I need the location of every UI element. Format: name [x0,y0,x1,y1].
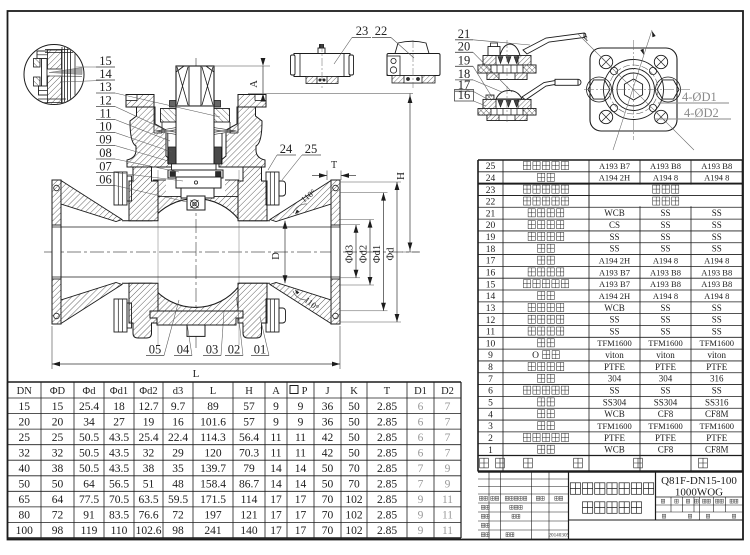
svg-text:9: 9 [488,351,493,361]
svg-text:A193 B8: A193 B8 [701,267,732,277]
svg-text:16: 16 [172,416,184,428]
svg-text:6: 6 [418,416,424,428]
svg-text:83.5: 83.5 [109,510,129,522]
svg-text:64: 64 [52,494,64,506]
svg-text:08: 08 [99,146,112,160]
svg-text:H: H [395,172,407,180]
svg-text:32: 32 [52,447,64,459]
svg-text:38: 38 [52,463,64,475]
svg-text:PTFE: PTFE [604,362,626,372]
svg-text:TFM1600: TFM1600 [597,421,631,431]
svg-text:P: P [302,386,308,397]
svg-text:CF8M: CF8M [705,445,729,455]
svg-text:SS: SS [609,385,619,395]
svg-text:2.85: 2.85 [377,525,397,537]
svg-text:6: 6 [418,401,424,413]
svg-text:25: 25 [19,432,31,444]
svg-text:13: 13 [486,304,496,314]
svg-text:A194 8: A194 8 [704,255,729,265]
svg-text:15: 15 [486,280,496,290]
svg-text:12: 12 [99,94,112,108]
svg-text:TFM1600: TFM1600 [648,338,682,348]
svg-text:SS: SS [609,232,619,242]
svg-text:WCB: WCB [604,409,625,419]
svg-text:65: 65 [19,494,31,506]
svg-text:11: 11 [295,432,306,444]
svg-text:19: 19 [486,233,496,243]
svg-text:10: 10 [486,339,496,349]
svg-text:40: 40 [19,463,31,475]
svg-text:76.6: 76.6 [138,510,158,522]
svg-text:Φd: Φd [83,386,97,397]
svg-text:50: 50 [348,416,360,428]
svg-text:11: 11 [442,510,453,522]
svg-text:2.85: 2.85 [377,447,397,459]
svg-text:17: 17 [270,494,282,506]
svg-text:H: H [245,386,253,397]
svg-text:9: 9 [298,401,304,413]
svg-text:20: 20 [19,416,31,428]
svg-text:50: 50 [348,432,360,444]
svg-text:57: 57 [243,416,255,428]
svg-text:9: 9 [273,416,279,428]
svg-text:43.5: 43.5 [109,447,129,459]
svg-text:A194 8: A194 8 [704,173,729,183]
svg-text:91: 91 [83,510,95,522]
svg-text:CS: CS [609,220,620,230]
svg-text:304: 304 [608,374,622,384]
svg-text:12: 12 [486,316,496,326]
svg-text:22: 22 [375,24,388,38]
svg-text:158.4: 158.4 [200,479,226,491]
svg-text:50.5: 50.5 [79,463,99,475]
svg-text:PTFE: PTFE [655,362,677,372]
svg-text:14: 14 [99,67,112,81]
svg-text:17: 17 [295,494,307,506]
svg-text:d3: d3 [173,386,184,397]
svg-text:T: T [331,160,337,171]
svg-text:14: 14 [270,463,282,475]
svg-text:PTFE: PTFE [604,433,626,443]
svg-text:2.85: 2.85 [377,463,397,475]
svg-text:7: 7 [418,479,424,491]
svg-text:17: 17 [295,510,307,522]
svg-text:05: 05 [149,343,162,357]
svg-text:2.85: 2.85 [377,494,397,506]
svg-text:TFM1600: TFM1600 [700,338,734,348]
svg-text:101.6: 101.6 [200,416,226,428]
svg-text:K: K [350,386,358,397]
svg-text:56.4: 56.4 [239,432,259,444]
svg-text:2: 2 [488,434,493,444]
svg-text:102: 102 [345,510,363,522]
svg-text:4: 4 [488,410,493,420]
svg-text:viton: viton [707,350,726,360]
svg-text:A: A [272,386,280,397]
svg-text:119: 119 [81,525,98,537]
svg-text:29: 29 [172,447,184,459]
svg-text:A194 8: A194 8 [653,173,678,183]
svg-text:Φd: Φd [386,247,397,261]
svg-text:25: 25 [52,432,64,444]
svg-text:SS: SS [609,244,619,254]
svg-text:77.5: 77.5 [79,494,99,506]
svg-text:42: 42 [322,432,334,444]
svg-text:6: 6 [488,387,493,397]
svg-text:A: A [249,80,260,88]
svg-text:50: 50 [19,479,31,491]
svg-text:SS: SS [712,220,722,230]
svg-text:7: 7 [445,416,451,428]
svg-text:4-ØD2: 4-ØD2 [684,106,719,120]
svg-text:64: 64 [83,479,95,491]
svg-text:197: 197 [204,510,222,522]
svg-text:6: 6 [418,447,424,459]
svg-text:SS: SS [609,326,619,336]
svg-text:14: 14 [295,479,307,491]
svg-text:A193 B8: A193 B8 [650,267,681,277]
svg-text:DN: DN [17,386,33,397]
svg-text:D1: D1 [414,386,427,397]
svg-text:A194 2H: A194 2H [599,173,630,183]
svg-text:SS: SS [712,326,722,336]
svg-text:SS304: SS304 [603,397,627,407]
svg-text:PTFE: PTFE [655,433,677,443]
svg-text:72: 72 [172,510,184,522]
svg-text:18: 18 [486,245,496,255]
svg-text:48: 48 [172,479,184,491]
svg-text:20: 20 [52,416,64,428]
svg-text:17: 17 [295,525,307,537]
svg-text:140: 140 [240,525,258,537]
svg-text:CF8: CF8 [658,445,674,455]
svg-text:9: 9 [418,525,424,537]
svg-text:16: 16 [458,88,471,102]
svg-text:102: 102 [345,525,363,537]
svg-text:SS: SS [660,315,670,325]
svg-text:70.5: 70.5 [109,494,129,506]
svg-text:9: 9 [418,510,424,522]
svg-text:9: 9 [445,463,451,475]
svg-text:139.7: 139.7 [200,463,226,475]
svg-text:32: 32 [143,447,155,459]
svg-text:L: L [210,386,216,397]
svg-text:T: T [384,386,391,397]
svg-text:7: 7 [445,447,451,459]
svg-text:07: 07 [99,160,112,174]
svg-text:241: 241 [204,525,222,537]
svg-text:PTFE: PTFE [706,433,728,443]
svg-text:50: 50 [348,447,360,459]
svg-text:SS: SS [609,315,619,325]
svg-text:89: 89 [207,401,219,413]
svg-text:2.85: 2.85 [377,432,397,444]
svg-text:17: 17 [486,257,496,267]
svg-text:ΦD: ΦD [50,386,66,397]
svg-text:viton: viton [605,350,624,360]
svg-text:Φd2: Φd2 [359,245,370,263]
svg-text:50.5: 50.5 [79,447,99,459]
svg-text:70: 70 [322,525,334,537]
svg-text:06: 06 [99,173,112,187]
svg-text:11: 11 [295,447,306,459]
svg-text:SS: SS [712,244,722,254]
svg-text:7: 7 [445,401,451,413]
svg-text:SS304: SS304 [654,397,678,407]
svg-text:9.7: 9.7 [171,401,186,413]
svg-text:80: 80 [19,510,31,522]
svg-text:14: 14 [295,463,307,475]
svg-text:D: D [271,252,282,260]
svg-text:102.6: 102.6 [136,525,162,537]
svg-text:35: 35 [172,463,184,475]
svg-text:A194 8: A194 8 [653,255,678,265]
svg-text:SS316: SS316 [705,397,729,407]
svg-text:7: 7 [418,463,424,475]
svg-text:42: 42 [322,447,334,459]
svg-text:24: 24 [280,142,293,156]
svg-text:PTFE: PTFE [706,362,728,372]
svg-text:70: 70 [322,510,334,522]
svg-text:114.3: 114.3 [200,432,226,444]
svg-text:316: 316 [710,374,724,384]
svg-text:32: 32 [19,447,31,459]
svg-text:03: 03 [206,343,219,357]
svg-text:A193 B8: A193 B8 [650,279,681,289]
svg-text:7: 7 [488,375,493,385]
svg-text:Φd3: Φd3 [345,245,356,263]
svg-text:14: 14 [486,292,496,302]
svg-text:TFM1600: TFM1600 [648,421,682,431]
svg-text:02: 02 [228,343,241,357]
svg-text:25.4: 25.4 [138,432,158,444]
svg-text:7: 7 [445,432,451,444]
svg-text:70: 70 [348,479,360,491]
svg-text:A193 B8: A193 B8 [650,161,681,171]
svg-text:Φd1: Φd1 [372,245,383,263]
svg-text:SS: SS [712,315,722,325]
svg-text:50.5: 50.5 [79,432,99,444]
svg-text:15: 15 [99,54,112,68]
svg-text:SS: SS [712,385,722,395]
svg-text:SS: SS [660,303,670,313]
svg-text:O: O [532,351,539,361]
svg-text:15: 15 [19,401,31,413]
svg-text:SS: SS [712,208,722,218]
svg-text:11: 11 [99,107,111,121]
svg-text:viton: viton [656,350,675,360]
svg-text:36: 36 [322,416,334,428]
svg-text:11: 11 [270,432,281,444]
svg-text:50: 50 [322,479,334,491]
svg-text:09: 09 [99,133,112,147]
svg-text:A193 B8: A193 B8 [701,161,732,171]
svg-text:121: 121 [240,510,258,522]
svg-text:WCB: WCB [604,445,625,455]
svg-text:A193 B7: A193 B7 [599,161,630,171]
svg-text:L: L [193,368,200,380]
svg-text:12.7: 12.7 [138,401,158,413]
svg-text:9: 9 [418,494,424,506]
svg-text:A193 B8: A193 B8 [701,279,732,289]
svg-text:5: 5 [488,399,493,409]
svg-text:11: 11 [442,525,453,537]
svg-text:51: 51 [143,479,155,491]
svg-text:17: 17 [270,510,282,522]
svg-text:13: 13 [99,80,112,94]
svg-text:100: 100 [16,525,34,537]
svg-text:72: 72 [52,510,64,522]
svg-text:70: 70 [322,494,334,506]
svg-text:25.4: 25.4 [79,401,99,413]
svg-text:16: 16 [486,268,496,278]
svg-text:1: 1 [488,446,493,456]
svg-text:9: 9 [445,479,451,491]
svg-text:120: 120 [204,447,222,459]
svg-text:2.85: 2.85 [377,479,397,491]
svg-text:2.85: 2.85 [377,401,397,413]
svg-text:11: 11 [486,328,495,338]
svg-text:SS: SS [660,208,670,218]
svg-text:SS: SS [712,303,722,313]
svg-text:56.5: 56.5 [109,479,129,491]
svg-text:102: 102 [345,494,363,506]
svg-text:6: 6 [418,432,424,444]
svg-text:SS: SS [660,385,670,395]
svg-text:11: 11 [270,447,281,459]
svg-text:14: 14 [270,479,282,491]
svg-text:SS: SS [660,244,670,254]
svg-text:22.4: 22.4 [168,432,188,444]
svg-text:04: 04 [177,343,190,357]
svg-text:CF8M: CF8M [705,409,729,419]
svg-text:21: 21 [486,209,496,219]
svg-text:43.5: 43.5 [109,432,129,444]
svg-text:D2: D2 [441,386,454,397]
svg-text:27: 27 [113,416,125,428]
svg-text:20140305: 20140305 [548,533,569,539]
svg-text:19: 19 [458,53,471,67]
svg-text:79: 79 [243,463,255,475]
svg-text:SS: SS [660,220,670,230]
svg-text:18: 18 [113,401,125,413]
svg-text:WCB: WCB [604,208,625,218]
svg-text:SS: SS [712,232,722,242]
svg-text:WCB: WCB [604,303,625,313]
svg-text:J: J [325,386,329,397]
svg-text:20: 20 [458,39,471,53]
svg-text:25: 25 [305,142,318,156]
svg-text:43.5: 43.5 [109,463,129,475]
svg-text:50: 50 [322,463,334,475]
svg-text:01: 01 [254,343,267,357]
svg-text:25: 25 [486,162,496,172]
svg-text:8: 8 [488,363,493,373]
svg-text:22: 22 [486,198,496,208]
svg-text:171.5: 171.5 [200,494,226,506]
svg-text:114: 114 [241,494,258,506]
svg-text:Q81F-DN15-100: Q81F-DN15-100 [661,475,737,487]
svg-text:23: 23 [486,186,496,196]
svg-text:70.3: 70.3 [239,447,259,459]
svg-text:2.85: 2.85 [377,510,397,522]
svg-text:A194 8: A194 8 [653,291,678,301]
svg-text:24: 24 [486,174,496,184]
svg-text:4-ØD1: 4-ØD1 [682,90,717,104]
svg-text:CF8: CF8 [658,409,674,419]
svg-text:A193 B7: A193 B7 [599,279,630,289]
svg-text:19: 19 [143,416,155,428]
svg-text:70: 70 [348,463,360,475]
svg-text:SS: SS [660,232,670,242]
svg-text:Φd1: Φd1 [110,386,128,397]
svg-text:SS: SS [660,326,670,336]
svg-text:2.85: 2.85 [377,416,397,428]
svg-text:10: 10 [99,120,112,134]
svg-text:A194 2H: A194 2H [599,255,630,265]
svg-text:304: 304 [659,374,673,384]
svg-text:9: 9 [298,416,304,428]
svg-text:110: 110 [111,525,128,537]
svg-text:23: 23 [356,24,369,38]
svg-text:34: 34 [83,416,95,428]
svg-text:15: 15 [52,401,64,413]
svg-text:59.5: 59.5 [168,494,188,506]
svg-text:98: 98 [52,525,64,537]
svg-text:20: 20 [486,221,496,231]
svg-text:11: 11 [442,494,453,506]
svg-text:A193 B7: A193 B7 [599,267,630,277]
svg-text:50: 50 [348,401,360,413]
svg-text:50: 50 [52,479,64,491]
svg-text:86.7: 86.7 [239,479,259,491]
svg-text:98: 98 [172,525,184,537]
svg-text:A194 2H: A194 2H [599,291,630,301]
svg-text:9: 9 [273,401,279,413]
svg-text:17: 17 [270,525,282,537]
svg-text:36: 36 [322,401,334,413]
svg-text:3: 3 [488,422,493,432]
svg-text:A194 8: A194 8 [704,291,729,301]
svg-text:63.5: 63.5 [138,494,158,506]
svg-text:TFM1600: TFM1600 [597,338,631,348]
svg-text:38: 38 [143,463,155,475]
svg-text:TFM1600: TFM1600 [700,421,734,431]
svg-text:Φd2: Φd2 [139,386,157,397]
svg-text:57: 57 [243,401,255,413]
